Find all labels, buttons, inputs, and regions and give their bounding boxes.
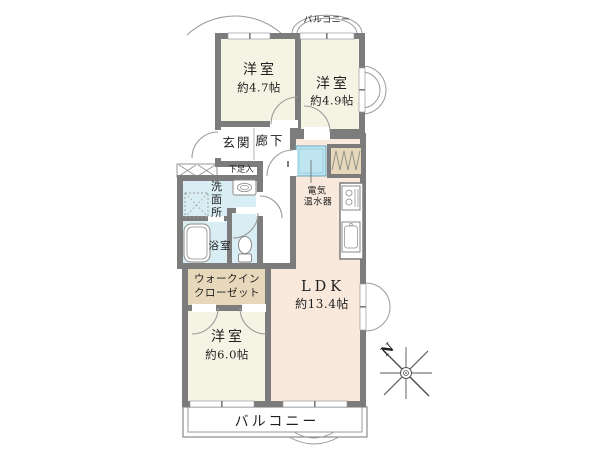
floor-plan-drawing — [0, 0, 600, 450]
label-ldk-name: LDK — [301, 280, 345, 295]
vanity-sink-icon — [233, 180, 256, 195]
bathtub-icon — [184, 224, 210, 262]
label-water-heater-line1: 電気 — [307, 188, 326, 197]
label-wic-line1: ウォークイン — [194, 274, 260, 285]
label-balcony-bottom: バルコニー — [235, 415, 320, 429]
stove-icon — [342, 186, 360, 210]
label-shoe-cabinet: 下足入 — [228, 166, 254, 175]
label-bathroom: 浴室 — [209, 241, 232, 252]
toilet-icon — [239, 237, 252, 263]
label-bedroom2-name: 洋室 — [316, 77, 350, 91]
label-bedroom3-area: 約6.0帖 — [205, 349, 249, 361]
floor-plan: バルコニー 洋室 約4.7帖 洋室 約4.9帖 玄関 廊下 下足入 洗面所 浴室… — [0, 0, 600, 450]
closet-hatch-icon — [329, 146, 363, 176]
label-corridor: 廊下 — [255, 135, 284, 148]
label-bedroom3-name: 洋室 — [211, 330, 245, 344]
label-bedroom1-area: 約4.7帖 — [237, 82, 281, 94]
label-washroom: 洗面所 — [211, 181, 222, 220]
room-inner-hallway — [260, 164, 293, 266]
kitchen-sink-icon — [342, 222, 360, 252]
label-entrance: 玄関 — [222, 137, 251, 150]
kitchen-counter — [340, 183, 363, 259]
label-balcony-top: バルコニー — [303, 17, 350, 26]
label-wic-line2: クローゼット — [194, 288, 260, 299]
label-bedroom1-name: 洋室 — [243, 63, 277, 77]
label-ldk-area: 約13.4帖 — [295, 298, 349, 310]
label-water-heater-line2: 温水器 — [304, 199, 333, 208]
label-bedroom2-area: 約4.9帖 — [310, 95, 354, 107]
